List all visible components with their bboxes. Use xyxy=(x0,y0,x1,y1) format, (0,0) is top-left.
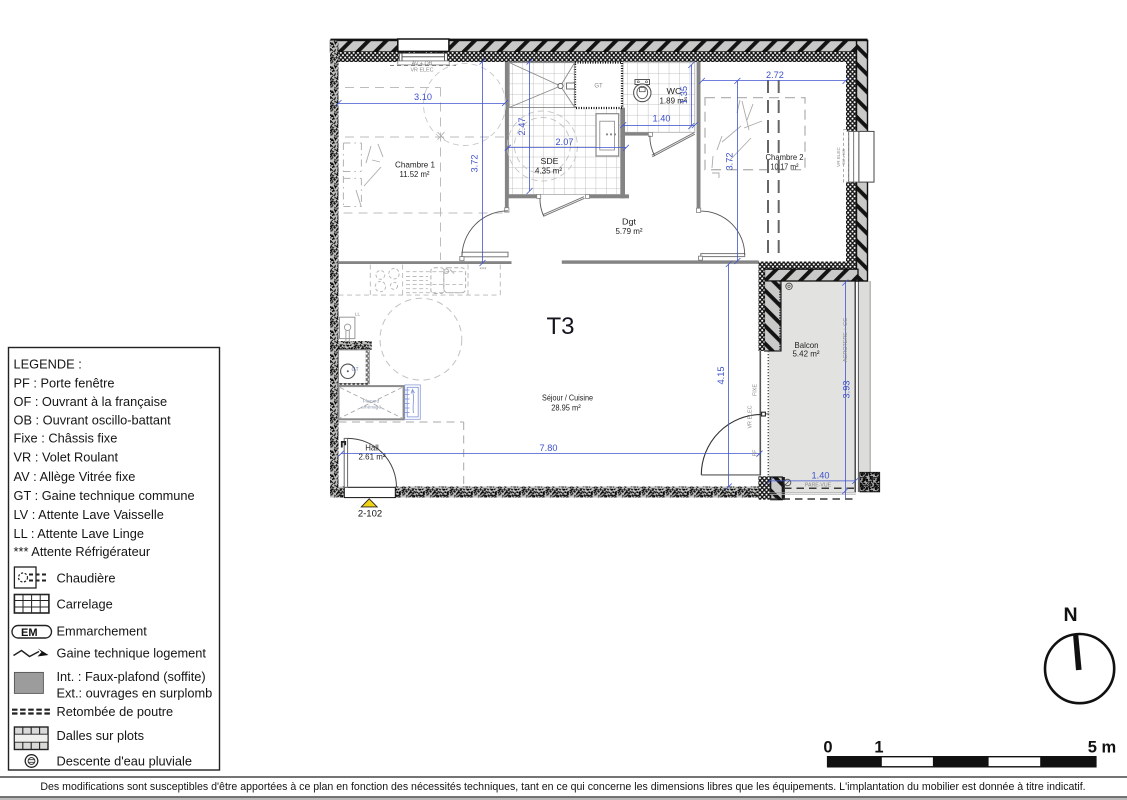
svg-text:Carrelage: Carrelage xyxy=(57,597,113,612)
svg-text:*** Attente Réfrigérateur: *** Attente Réfrigérateur xyxy=(14,544,151,559)
svg-text:11.52 m²: 11.52 m² xyxy=(400,169,430,179)
svg-text:1: 1 xyxy=(874,739,883,757)
svg-text:T3: T3 xyxy=(547,313,575,340)
svg-text:OB : Ouvrant oscillo-battant: OB : Ouvrant oscillo-battant xyxy=(14,413,172,428)
svg-text:FIXE: FIXE xyxy=(753,384,759,396)
svg-text:5.79 m²: 5.79 m² xyxy=(616,226,643,236)
svg-text:VR ELEC: VR ELEC xyxy=(410,68,433,74)
svg-text:VR ELEC: VR ELEC xyxy=(836,146,841,166)
svg-text:Séjour / Cuisine: Séjour / Cuisine xyxy=(542,393,593,403)
svg-text:Ext.: ouvrages en surplomb: Ext.: ouvrages en surplomb xyxy=(57,686,213,701)
svg-text:2.72: 2.72 xyxy=(766,70,784,80)
svg-text:Dgt: Dgt xyxy=(622,217,637,227)
svg-text:N: N xyxy=(1064,604,1078,626)
svg-text:Des modifications sont suscept: Des modifications sont susceptibles d'êt… xyxy=(40,781,1085,793)
svg-text:28.95 m²: 28.95 m² xyxy=(551,403,581,413)
svg-text:3.72: 3.72 xyxy=(470,155,480,173)
svg-text:SDE: SDE xyxy=(541,156,559,166)
svg-text:1.35: 1.35 xyxy=(679,86,689,104)
svg-text:Placard: Placard xyxy=(363,399,380,405)
svg-text:PARE-VUE: PARE-VUE xyxy=(805,483,832,489)
svg-text:2.07: 2.07 xyxy=(556,137,574,147)
svg-text:AV + OB: AV + OB xyxy=(412,61,433,67)
svg-text:Retombée de poutre: Retombée de poutre xyxy=(57,704,174,719)
svg-text:Chaudière: Chaudière xyxy=(57,571,116,586)
svg-text:Chambre 1: Chambre 1 xyxy=(395,160,435,170)
svg-text:GT: GT xyxy=(352,367,360,373)
svg-text:Gaine technique logement: Gaine technique logement xyxy=(57,646,207,661)
svg-text:4.35 m²: 4.35 m² xyxy=(535,166,562,176)
svg-text:***: *** xyxy=(479,268,487,274)
svg-text:1.40: 1.40 xyxy=(653,114,671,124)
svg-text:GT : Gaine technique commune: GT : Gaine technique commune xyxy=(14,488,195,503)
svg-text:OF : Ouvrant à la française: OF : Ouvrant à la française xyxy=(14,394,168,409)
svg-text:Dalles sur plots: Dalles sur plots xyxy=(57,728,144,743)
svg-text:LL : Attente Lave Linge: LL : Attente Lave Linge xyxy=(14,526,144,541)
svg-text:LL: LL xyxy=(355,312,361,317)
svg-text:10.17 m²: 10.17 m² xyxy=(771,162,799,172)
svg-text:4.15: 4.15 xyxy=(716,367,726,385)
svg-text:2.61 m²: 2.61 m² xyxy=(359,452,386,462)
svg-text:AV : Allège Vitrée fixe: AV : Allège Vitrée fixe xyxy=(14,469,136,484)
svg-text:VR ELEC: VR ELEC xyxy=(748,405,754,428)
svg-text:2-102: 2-102 xyxy=(358,509,382,520)
svg-text:7.80: 7.80 xyxy=(540,443,558,453)
svg-text:Int. : Faux-plafond (soffite): Int. : Faux-plafond (soffite) xyxy=(57,669,206,684)
svg-text:aménagé: aménagé xyxy=(361,405,381,411)
svg-text:Descente d'eau pluviale: Descente d'eau pluviale xyxy=(57,754,192,769)
svg-text:2.47: 2.47 xyxy=(517,118,527,136)
svg-text:LV : Attente Lave Vaisselle: LV : Attente Lave Vaisselle xyxy=(14,507,164,522)
svg-text:PF: PF xyxy=(753,449,759,457)
svg-text:3.10: 3.10 xyxy=(414,92,432,102)
svg-text:Emmarchement: Emmarchement xyxy=(57,624,148,639)
svg-text:Fixe : Châssis fixe: Fixe : Châssis fixe xyxy=(14,431,118,446)
svg-text:PF : Porte fenêtre: PF : Porte fenêtre xyxy=(14,376,115,391)
svg-text:EM: EM xyxy=(21,627,38,639)
svg-text:GT: GT xyxy=(594,84,603,90)
svg-text:3.72: 3.72 xyxy=(725,153,735,171)
svg-text:ACROTERE + GC: ACROTERE + GC xyxy=(843,318,849,362)
svg-text:Chambre 2: Chambre 2 xyxy=(766,152,804,162)
svg-text:5 m: 5 m xyxy=(1088,739,1116,757)
svg-text:3.93: 3.93 xyxy=(842,381,852,399)
svg-text:VR : Volet Roulant: VR : Volet Roulant xyxy=(14,450,119,465)
svg-text:0: 0 xyxy=(823,739,832,757)
svg-text:1.40: 1.40 xyxy=(812,471,830,481)
svg-text:5.42 m²: 5.42 m² xyxy=(793,349,820,359)
svg-text:302 x 105: 302 x 105 xyxy=(842,149,846,165)
svg-text:LEGENDE :: LEGENDE : xyxy=(14,357,82,372)
